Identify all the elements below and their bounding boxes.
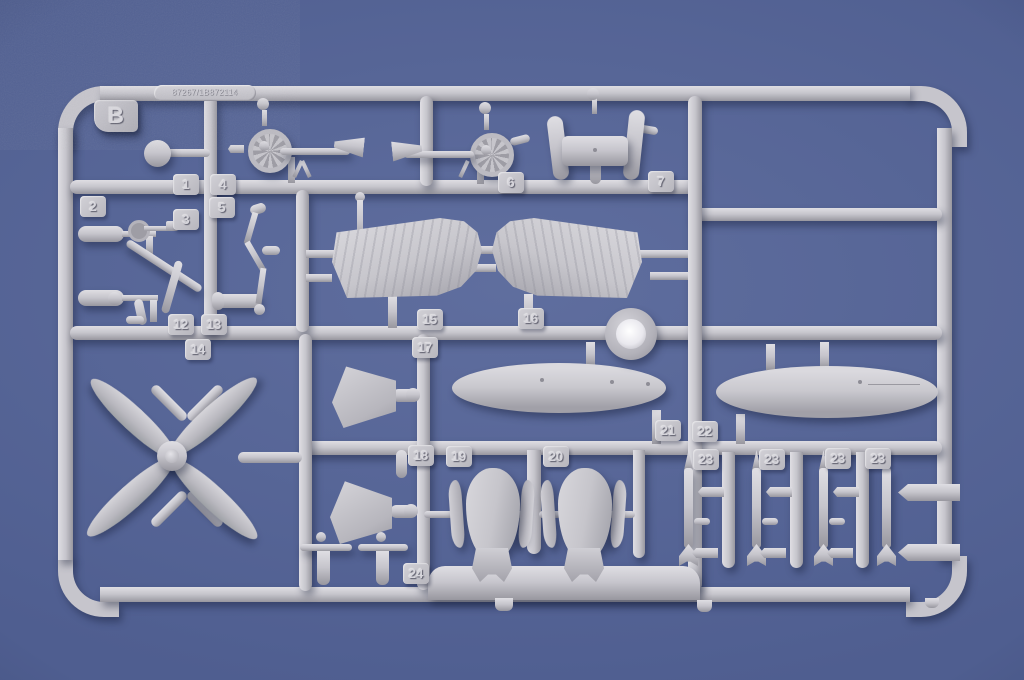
part-linkage-paddle-mid — [262, 246, 280, 255]
part-disc — [144, 140, 171, 167]
sprue-runner-rockets-2 — [790, 452, 803, 568]
part-rocket-body-half-lower — [898, 544, 960, 561]
part-rocket-3-cyl — [827, 548, 853, 558]
sprue-nub — [495, 598, 513, 611]
part-lewis-gun-left-stem — [262, 110, 267, 126]
part-gear-strut-ball — [108, 292, 121, 305]
sprue-connector — [149, 489, 189, 529]
part-lewis-gun-right-stem — [484, 114, 489, 130]
sprue-gate — [238, 452, 302, 463]
part-rocket-4-body — [882, 468, 891, 548]
part-number-tag-23a: 23 — [693, 449, 719, 470]
part-gear-strut-diagonal — [125, 239, 203, 294]
fabric-texture — [0, 0, 300, 150]
sprue-gate — [586, 342, 595, 366]
part-stabilizer-right — [492, 218, 642, 298]
part-lewis-gun-right-stock — [391, 138, 423, 161]
part-drop-tank-left-rivet — [646, 382, 650, 386]
sprue-connector — [149, 383, 189, 423]
part-lewis-gun-right-vsight — [458, 160, 469, 178]
part-bomb-left-fin-l — [448, 480, 466, 549]
part-linkage-seg3 — [256, 268, 267, 304]
part-rocket-2-bit — [762, 518, 778, 525]
part-number-tag-22: 22 — [692, 421, 718, 442]
part-number-tag-23c: 23 — [825, 448, 851, 469]
part-cradle-arm — [509, 134, 530, 147]
part-rocket-body-half-upper — [898, 484, 960, 501]
sprue-gate — [396, 450, 407, 478]
part-number-tag-17: 17 — [412, 337, 438, 358]
sprue-photo: { "sprue": { "letter": "B", "mold_code":… — [0, 0, 1024, 680]
part-number-tag-23d: 23 — [865, 448, 891, 469]
part-lewis-gun-left-vsight2 — [300, 160, 311, 178]
sprue-gate — [650, 272, 688, 280]
sprue-gate — [388, 296, 397, 328]
part-rocket-3-bit — [829, 518, 845, 525]
part-bomb-right-fin-r — [610, 480, 628, 549]
part-number-tag-4: 4 — [210, 174, 236, 195]
part-t-bracket-2-knob — [376, 532, 386, 542]
part-lewis-gun-left-knob — [257, 98, 269, 110]
sprue-gate — [306, 274, 332, 282]
part-drop-tank-left-rivet — [540, 378, 544, 382]
part-number-tag-20: 20 — [543, 446, 569, 467]
sprue-gate — [640, 250, 688, 258]
part-linkage-seg1 — [244, 212, 259, 244]
part-number-tag-23b: 23 — [759, 449, 785, 470]
sprue-runner-rockets-1 — [722, 452, 735, 568]
part-rocket-3-body — [819, 468, 828, 548]
part-lewis-gun-left-hub — [259, 141, 269, 151]
sprue-bottom-wave — [428, 566, 700, 600]
part-number-tag-13: 13 — [201, 314, 227, 335]
part-pod-upper — [78, 226, 124, 242]
part-rocket-1-cyl — [692, 548, 718, 558]
part-disc-stick — [166, 149, 210, 157]
sprue-runner-rockets-3 — [856, 452, 869, 568]
part-linkage-seg2 — [244, 241, 265, 272]
part-drop-tank-right-rivet — [858, 380, 862, 384]
part-rocket-4-fins — [877, 544, 896, 566]
part-number-tag-2: 2 — [80, 196, 106, 217]
part-drop-tank-right-pylon — [766, 344, 775, 370]
sprue-gate — [736, 414, 745, 444]
mold-code-plate: 87267/1B872114 — [154, 85, 256, 101]
sprue-rail-v9 — [299, 334, 312, 591]
part-drop-tank-left — [452, 363, 666, 413]
part-bomb-right-body — [558, 468, 612, 558]
part-cradle-hole — [593, 148, 597, 152]
part-rocket-2-motor — [766, 487, 792, 497]
part-linkage-ball — [254, 304, 265, 315]
part-propeller-hub-dome — [165, 449, 179, 463]
part-t-bracket-1-bar — [300, 544, 352, 551]
part-stabilizer-left — [332, 218, 482, 298]
part-number-tag-15: 15 — [417, 309, 443, 330]
part-rocket-2-body — [752, 468, 761, 548]
part-fairing-17-ball — [406, 388, 420, 402]
part-t-bracket-1-leg — [317, 551, 330, 585]
part-rocket-1-body — [684, 468, 693, 548]
part-fairing-18-ball — [404, 504, 418, 518]
part-exhaust-elbow-cap — [212, 292, 224, 310]
part-number-tag-3: 3 — [173, 209, 199, 230]
sprue-nub — [925, 598, 939, 608]
part-wheel-clear-center — [616, 319, 646, 349]
part-rocket-2-cyl — [760, 548, 786, 558]
part-lewis-gun-right-hub — [481, 145, 491, 155]
part-number-tag-6: 6 — [498, 172, 524, 193]
part-gear-strut-pad — [126, 316, 144, 324]
sprue-rail-v3 — [296, 190, 309, 332]
part-t-bracket-2-bar — [358, 544, 408, 551]
part-cradle-knob — [587, 88, 599, 100]
part-number-tag-14: 14 — [185, 339, 211, 360]
part-number-tag-18: 18 — [408, 445, 434, 466]
part-number-tag-1: 1 — [173, 174, 199, 195]
part-bomb-right-fin-l — [540, 480, 558, 549]
part-drop-tank-right-line — [868, 384, 920, 385]
sprue-frame-left — [58, 128, 73, 560]
part-lewis-gun-left-handle — [228, 145, 244, 153]
sprue-frame-corner-br — [906, 556, 967, 617]
sprue-runner-bombs-right — [633, 450, 645, 558]
part-number-tag-16: 16 — [518, 308, 544, 329]
part-number-tag-21: 21 — [655, 420, 681, 441]
part-lewis-gun-right-knob — [479, 102, 491, 114]
part-cradle-stem — [592, 98, 597, 114]
sprue-nub — [697, 600, 712, 612]
part-lewis-gun-right-magazine — [470, 133, 514, 177]
sprue-gate — [306, 250, 334, 258]
part-rocket-1-bit — [694, 518, 710, 525]
part-number-tag-5: 5 — [209, 197, 235, 218]
part-number-tag-24: 24 — [403, 563, 429, 584]
part-drop-tank-right — [716, 366, 938, 418]
part-number-tag-19: 19 — [446, 446, 472, 467]
part-pod-lower-tab — [150, 300, 157, 322]
part-drop-tank-left-rivet — [610, 380, 614, 384]
sprue-rail-h2 — [70, 180, 695, 194]
part-rocket-3-motor — [833, 487, 859, 497]
part-number-tag-12: 12 — [168, 314, 194, 335]
sprue-rail-h2-right — [690, 208, 942, 221]
part-t-bracket-1-knob — [316, 532, 326, 542]
sprue-letter-tab: B — [94, 100, 138, 132]
part-number-tag-7: 7 — [648, 171, 674, 192]
part-bomb-left-body — [466, 468, 520, 558]
sprue-rail-v4 — [420, 96, 433, 186]
part-rocket-1-motor — [698, 487, 724, 497]
part-fairing-17 — [332, 364, 396, 428]
part-t-bracket-2-leg — [376, 551, 389, 585]
part-small-gun-wheel — [128, 220, 150, 242]
